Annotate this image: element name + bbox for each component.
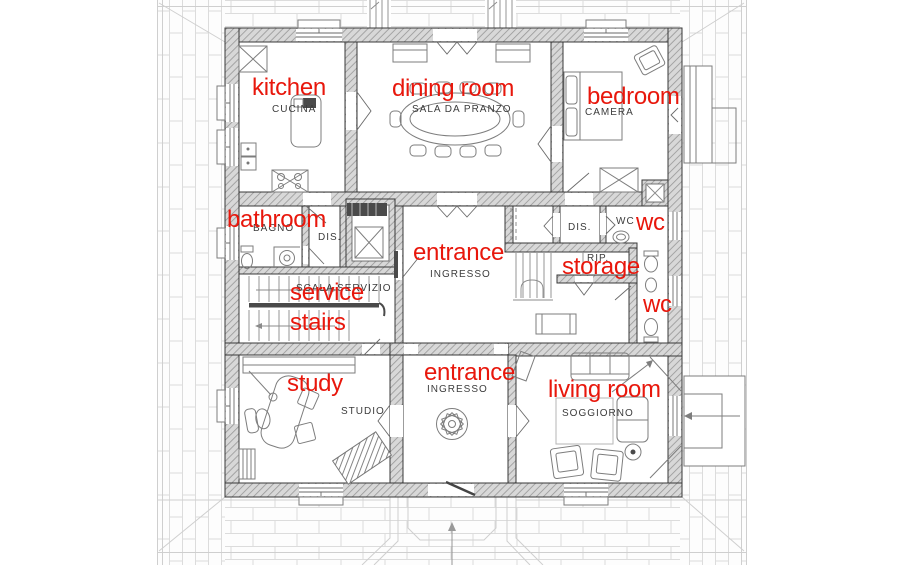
room-label-soggiorno: SOGGIORNO: [562, 408, 634, 419]
annotation-living-room: living room: [548, 376, 661, 403]
room-label-wc: WC: [616, 216, 635, 227]
room-label-dis-right: DIS.: [568, 222, 591, 233]
room-label-ingresso-upper: INGRESSO: [430, 269, 491, 280]
floor-plan-page: CUCINA SALA DA PRANZO CAMERA BAGNO DIS. …: [0, 0, 900, 565]
annotation-dining-room: dining room: [392, 75, 514, 102]
annotation-bathroom: bathroom: [227, 206, 326, 233]
annotation-stairs: stairs: [290, 309, 346, 336]
annotation-wc-lower: wc: [642, 291, 672, 318]
annotation-entrance-lower: entrance: [424, 359, 515, 386]
room-label-studio: STUDIO: [341, 406, 385, 417]
exterior-terrace-right-living: [684, 376, 745, 466]
annotation-service: service: [290, 279, 364, 306]
annotation-kitchen: kitchen: [252, 74, 326, 101]
annotation-bedroom: bedroom: [587, 83, 680, 110]
floor-plan-canvas: CUCINA SALA DA PRANZO CAMERA BAGNO DIS. …: [0, 0, 900, 565]
room-label-dis-left: DIS.: [318, 232, 341, 243]
annotation-entrance-upper: entrance: [413, 239, 504, 266]
room-label-sala-da-pranzo: SALA DA PRANZO: [412, 104, 512, 115]
annotation-study: study: [287, 370, 343, 397]
room-label-cucina: CUCINA: [272, 104, 316, 115]
annotation-storage: storage: [562, 253, 640, 280]
annotation-wc-upper: wc: [635, 209, 665, 236]
